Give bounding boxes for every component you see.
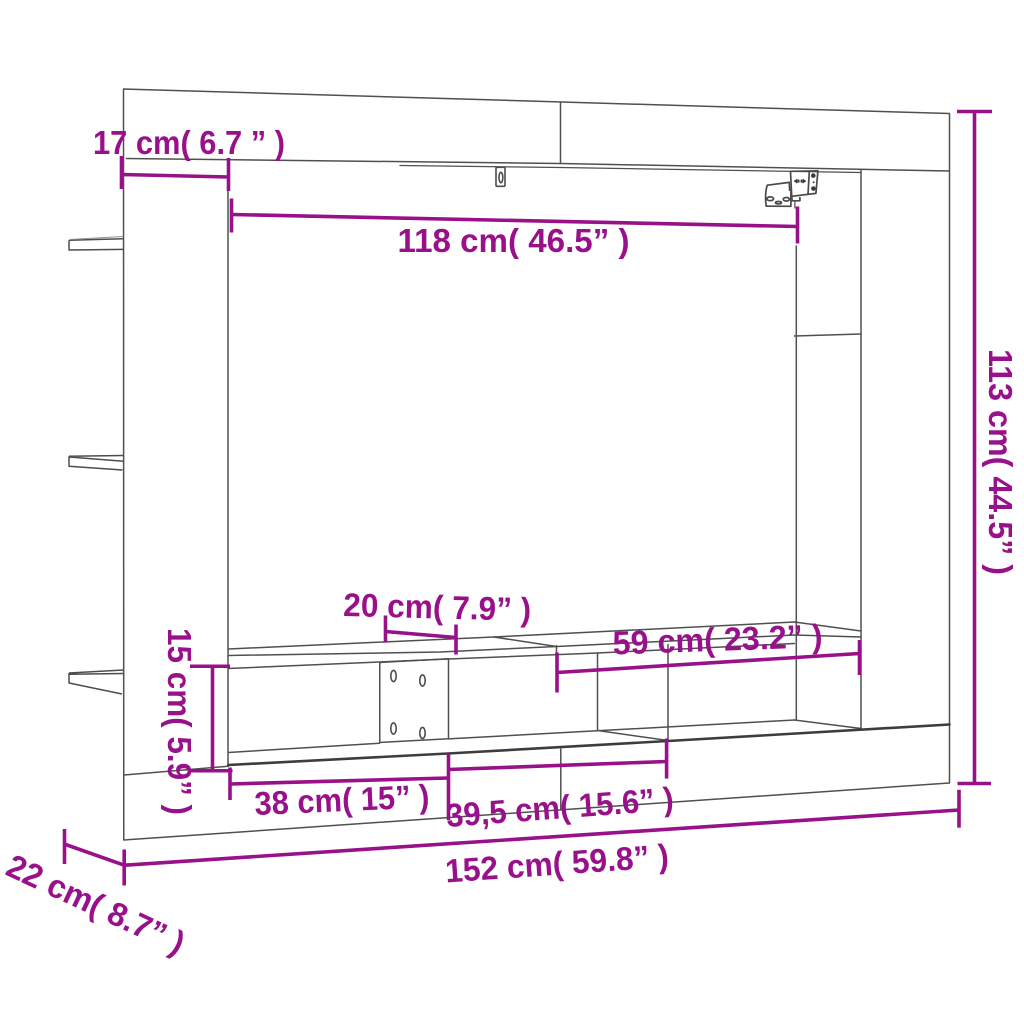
svg-text:15 cm( 5.9” ): 15 cm( 5.9” ) xyxy=(161,628,198,815)
svg-text:20 cm( 7.9” ): 20 cm( 7.9” ) xyxy=(343,586,532,628)
svg-text:38 cm( 15” ): 38 cm( 15” ) xyxy=(254,777,430,822)
svg-text:17 cm( 6.7 ” ): 17 cm( 6.7 ” ) xyxy=(93,124,285,161)
svg-text:59 cm( 23.2” ): 59 cm( 23.2” ) xyxy=(612,617,823,661)
svg-text:113 cm( 44.5” ): 113 cm( 44.5” ) xyxy=(982,349,1019,575)
svg-text:118 cm( 46.5” ): 118 cm( 46.5” ) xyxy=(398,222,630,259)
